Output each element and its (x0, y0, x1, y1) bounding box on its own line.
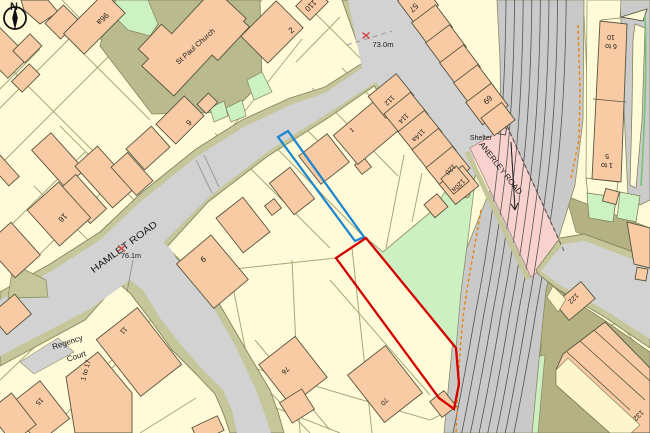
svg-text:10: 10 (607, 33, 615, 40)
svg-text:1 to: 1 to (601, 161, 613, 168)
svg-text:73.0m: 73.0m (372, 40, 393, 49)
svg-text:6 to: 6 to (605, 42, 617, 49)
svg-text:5: 5 (605, 152, 609, 159)
svg-text:76.1m: 76.1m (121, 251, 141, 260)
svg-text:Shelter: Shelter (470, 135, 493, 142)
